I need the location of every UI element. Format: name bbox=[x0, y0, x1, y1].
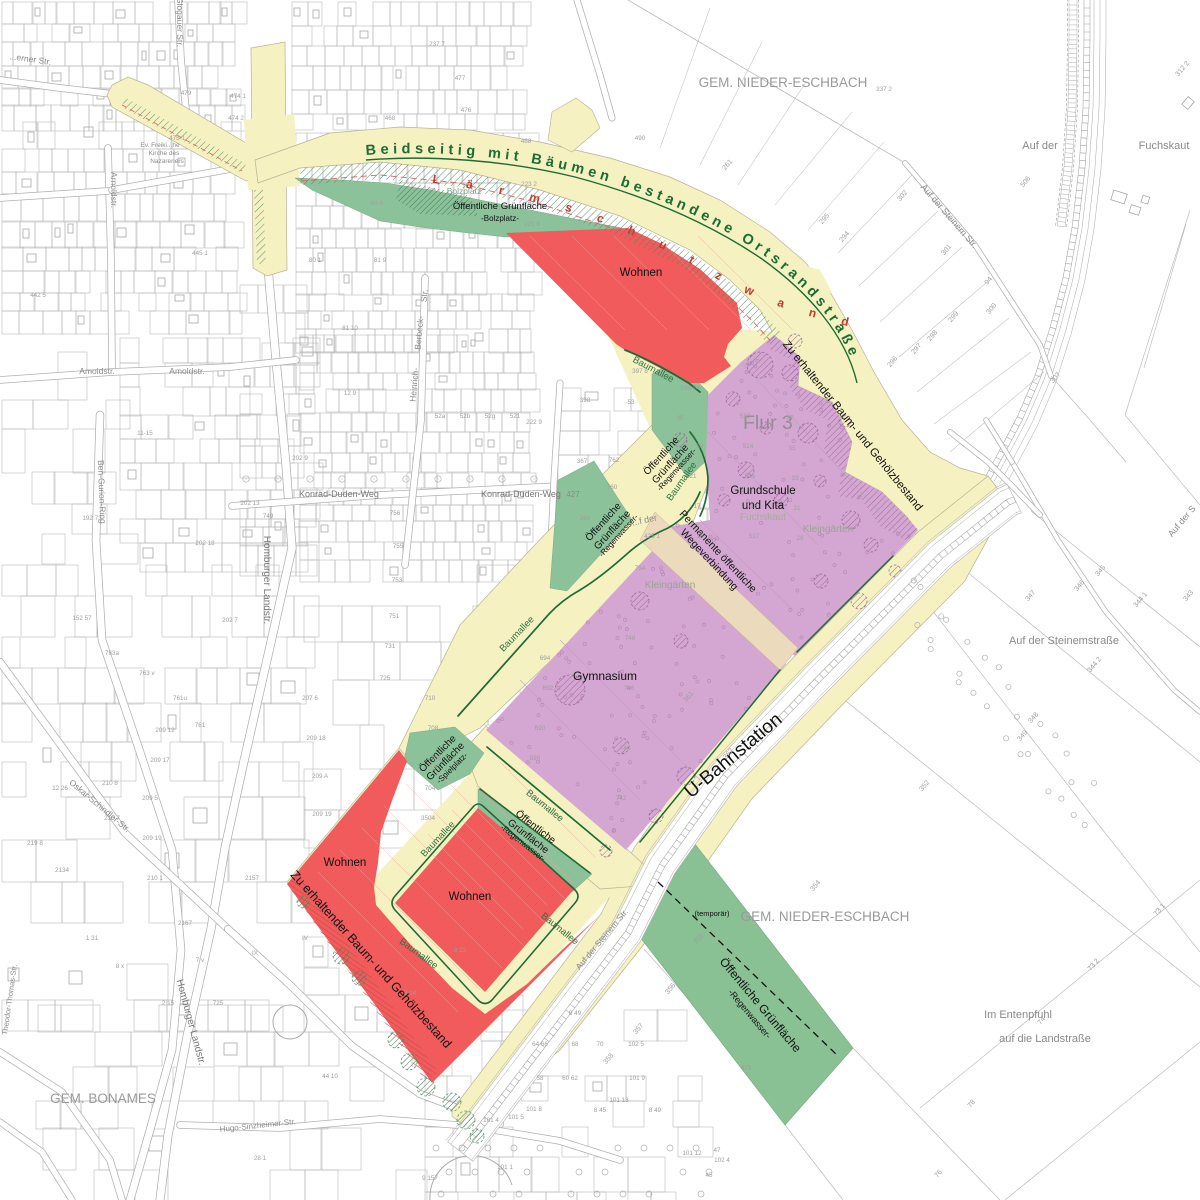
svg-text:725: 725 bbox=[213, 1000, 224, 1007]
svg-text:101 1: 101 1 bbox=[497, 1164, 513, 1171]
svg-text:Gymnasium: Gymnasium bbox=[573, 669, 637, 683]
svg-text:GEM. NIEDER-ESCHBACH: GEM. NIEDER-ESCHBACH bbox=[699, 75, 868, 90]
svg-text:12 9: 12 9 bbox=[344, 390, 357, 397]
svg-text:17: 17 bbox=[693, 503, 701, 510]
svg-text:210 8: 210 8 bbox=[102, 780, 118, 787]
svg-text:Ev. Freiki...he: Ev. Freiki...he bbox=[140, 142, 180, 149]
svg-text:101 13: 101 13 bbox=[609, 1097, 629, 1104]
svg-text:746: 746 bbox=[624, 685, 635, 692]
svg-text:202 13: 202 13 bbox=[240, 500, 260, 507]
svg-text:710: 710 bbox=[425, 695, 436, 702]
svg-text:209 19: 209 19 bbox=[142, 835, 162, 842]
svg-text:692: 692 bbox=[543, 685, 554, 692]
svg-text:21: 21 bbox=[689, 473, 697, 480]
svg-text:Fuchskaut: Fuchskaut bbox=[1139, 140, 1190, 152]
svg-text:Glogauer Str.: Glogauer Str. bbox=[175, 0, 185, 47]
svg-text:102 5: 102 5 bbox=[628, 1041, 644, 1048]
svg-text:8 49: 8 49 bbox=[649, 1107, 662, 1114]
svg-text:694: 694 bbox=[540, 655, 551, 662]
svg-text:101 5: 101 5 bbox=[508, 1114, 524, 1121]
svg-text:761u: 761u bbox=[173, 695, 188, 702]
svg-text:Kleingärten: Kleingärten bbox=[803, 524, 854, 535]
svg-text:367: 367 bbox=[577, 458, 588, 465]
svg-text:474 1: 474 1 bbox=[230, 93, 246, 100]
svg-text:auf die Landstraße: auf die Landstraße bbox=[999, 1033, 1091, 1045]
svg-text:58: 58 bbox=[536, 1075, 544, 1082]
svg-text:222 9: 222 9 bbox=[526, 419, 542, 426]
svg-text:2 15: 2 15 bbox=[162, 1000, 175, 1007]
svg-text:209 12: 209 12 bbox=[155, 727, 175, 734]
svg-text:3504: 3504 bbox=[421, 815, 436, 822]
svg-text:2134: 2134 bbox=[55, 867, 70, 874]
svg-text:760: 760 bbox=[607, 484, 618, 491]
svg-text:101 9: 101 9 bbox=[629, 1075, 645, 1082]
svg-text:-53: -53 bbox=[625, 399, 635, 406]
svg-text:29: 29 bbox=[796, 535, 804, 542]
svg-text:80 8: 80 8 bbox=[371, 200, 384, 207]
svg-text:468: 468 bbox=[385, 115, 396, 122]
svg-text:763a: 763a bbox=[105, 650, 120, 657]
svg-text:209 A: 209 A bbox=[312, 773, 329, 780]
svg-text:GEM. BONAMES: GEM. BONAMES bbox=[50, 1091, 156, 1106]
svg-text:755: 755 bbox=[393, 543, 404, 550]
svg-text:31: 31 bbox=[793, 505, 801, 512]
svg-text:70: 70 bbox=[596, 1041, 604, 1048]
svg-text:762: 762 bbox=[609, 457, 620, 464]
svg-text:521: 521 bbox=[510, 413, 521, 420]
svg-text:223 2: 223 2 bbox=[521, 181, 537, 188]
svg-text:(temporär): (temporär) bbox=[694, 909, 730, 918]
svg-text:8 23: 8 23 bbox=[454, 947, 467, 954]
svg-text:9 157: 9 157 bbox=[422, 1175, 438, 1182]
svg-text:8 x: 8 x bbox=[116, 963, 125, 970]
svg-text:202 9: 202 9 bbox=[292, 455, 308, 462]
svg-text:Homburger Landstr.: Homburger Landstr. bbox=[261, 536, 272, 624]
svg-text:488: 488 bbox=[521, 138, 532, 145]
svg-text:753: 753 bbox=[392, 577, 403, 584]
svg-text:GEM. NIEDER-ESCHBACH: GEM. NIEDER-ESCHBACH bbox=[741, 909, 910, 924]
svg-text:Bolzplatz: Bolzplatz bbox=[447, 186, 482, 196]
svg-text:52g: 52g bbox=[485, 413, 496, 420]
svg-text:Konrad-Duden-Weg: Konrad-Duden-Weg bbox=[299, 489, 379, 499]
svg-text:761: 761 bbox=[195, 722, 206, 729]
svg-text:742: 742 bbox=[616, 795, 627, 802]
svg-text:2167: 2167 bbox=[178, 920, 193, 927]
svg-text:35: 35 bbox=[788, 445, 796, 452]
svg-text:207 6: 207 6 bbox=[302, 695, 318, 702]
svg-text:590: 590 bbox=[530, 755, 541, 762]
svg-text:192 73: 192 73 bbox=[82, 515, 102, 522]
svg-text:219 8: 219 8 bbox=[27, 840, 43, 847]
svg-text:Wohnen: Wohnen bbox=[449, 891, 492, 903]
svg-text:Wohnen: Wohnen bbox=[620, 267, 663, 279]
svg-text:Konrad-Duden-Weg: Konrad-Duden-Weg bbox=[481, 489, 561, 499]
svg-text:101 8: 101 8 bbox=[526, 1106, 542, 1113]
svg-text:445 1: 445 1 bbox=[192, 250, 208, 257]
svg-text:209 17: 209 17 bbox=[150, 757, 170, 764]
svg-text:Amoldstr.: Amoldstr. bbox=[79, 366, 114, 376]
svg-text:398: 398 bbox=[580, 397, 591, 404]
svg-text:1 31: 1 31 bbox=[86, 935, 99, 942]
svg-text:427: 427 bbox=[566, 490, 580, 499]
svg-text:23: 23 bbox=[696, 443, 704, 450]
svg-text:513: 513 bbox=[740, 413, 751, 420]
svg-text:15: 15 bbox=[696, 533, 704, 540]
svg-text:706: 706 bbox=[431, 755, 442, 762]
svg-text:517: 517 bbox=[749, 533, 760, 540]
svg-text:Grundschule: Grundschule bbox=[730, 485, 795, 497]
svg-text:490: 490 bbox=[635, 135, 646, 142]
svg-text:Auf der Steinemstraße: Auf der Steinemstraße bbox=[1009, 635, 1119, 647]
svg-text:52a: 52a bbox=[435, 413, 446, 420]
svg-text:12 26: 12 26 bbox=[52, 785, 68, 792]
svg-text:81 9: 81 9 bbox=[374, 257, 387, 264]
svg-text:25: 25 bbox=[676, 415, 684, 422]
svg-text:Amoldstr.: Amoldstr. bbox=[169, 366, 204, 376]
svg-text:Kirche des: Kirche des bbox=[149, 150, 180, 157]
svg-text:210 1: 210 1 bbox=[147, 875, 163, 882]
svg-text:Nazareners: Nazareners bbox=[150, 158, 184, 165]
svg-text:8 49: 8 49 bbox=[569, 1010, 582, 1017]
svg-text:425 1: 425 1 bbox=[644, 533, 660, 540]
svg-text:60 62: 60 62 bbox=[562, 1075, 578, 1082]
svg-text:536 24: 536 24 bbox=[680, 385, 700, 392]
svg-text:11-15: 11-15 bbox=[137, 430, 153, 437]
svg-text:690: 690 bbox=[535, 725, 546, 732]
svg-text:7 v: 7 v bbox=[196, 957, 205, 964]
svg-text:202 18: 202 18 bbox=[195, 540, 215, 547]
svg-text:473: 473 bbox=[741, 1065, 752, 1072]
svg-text:-Bolzplatz-: -Bolzplatz- bbox=[481, 214, 519, 223]
svg-text:101 4: 101 4 bbox=[483, 1117, 499, 1124]
svg-text:474 2: 474 2 bbox=[228, 115, 244, 122]
svg-text:44 10: 44 10 bbox=[322, 1073, 338, 1080]
svg-text:754: 754 bbox=[635, 565, 646, 572]
svg-text:748: 748 bbox=[625, 635, 636, 642]
svg-text:52b: 52b bbox=[460, 413, 471, 420]
svg-text:209 18: 209 18 bbox=[306, 735, 326, 742]
svg-text:Kleingärten: Kleingärten bbox=[645, 580, 696, 591]
svg-text:731: 731 bbox=[385, 643, 396, 650]
svg-text:515: 515 bbox=[745, 473, 756, 480]
svg-text:751: 751 bbox=[389, 613, 400, 620]
svg-text:397 8: 397 8 bbox=[632, 368, 648, 375]
svg-text:68: 68 bbox=[571, 1041, 579, 1048]
svg-text:8 45: 8 45 bbox=[594, 1107, 607, 1114]
svg-text:Flur 3: Flur 3 bbox=[743, 412, 793, 434]
svg-text:33: 33 bbox=[791, 475, 799, 482]
svg-text:81 10: 81 10 bbox=[342, 325, 358, 332]
svg-text:37: 37 bbox=[786, 415, 794, 422]
svg-text:749: 749 bbox=[263, 513, 274, 520]
svg-text:237 7: 237 7 bbox=[429, 41, 445, 48]
svg-text:209 5: 209 5 bbox=[142, 795, 158, 802]
svg-text:477: 477 bbox=[455, 75, 466, 82]
svg-text:222 9: 222 9 bbox=[524, 221, 540, 228]
svg-text:704: 704 bbox=[425, 785, 436, 792]
svg-text:725: 725 bbox=[380, 675, 391, 682]
svg-text:80 1: 80 1 bbox=[309, 257, 322, 264]
svg-text:209 19: 209 19 bbox=[312, 811, 332, 818]
svg-text:Str.: Str. bbox=[418, 289, 429, 303]
svg-text:3 14: 3 14 bbox=[404, 990, 417, 997]
svg-text:Öffentliche Grünfläche: Öffentliche Grünfläche bbox=[453, 201, 547, 212]
svg-text:708: 708 bbox=[428, 725, 439, 732]
svg-text:744: 744 bbox=[620, 745, 631, 752]
svg-text:479: 479 bbox=[181, 90, 192, 97]
svg-text:210 7: 210 7 bbox=[104, 815, 120, 822]
svg-text:756: 756 bbox=[390, 510, 401, 517]
svg-text:Wohnen: Wohnen bbox=[324, 857, 367, 869]
svg-text:152 57: 152 57 bbox=[72, 615, 92, 622]
svg-text:514: 514 bbox=[743, 443, 754, 450]
svg-text:Arnoldstr.: Arnoldstr. bbox=[109, 172, 119, 208]
svg-text:64 66: 64 66 bbox=[532, 1041, 548, 1048]
svg-text:101 12: 101 12 bbox=[682, 1150, 702, 1157]
svg-text:IV: IV bbox=[302, 935, 309, 942]
svg-text:28 1: 28 1 bbox=[254, 1155, 267, 1162]
svg-text:516: 516 bbox=[747, 503, 758, 510]
svg-text:102 4: 102 4 bbox=[714, 1157, 730, 1164]
svg-text:47: 47 bbox=[713, 1147, 721, 1154]
svg-text:Auf der: Auf der bbox=[1022, 140, 1058, 152]
svg-text:442 5: 442 5 bbox=[30, 292, 46, 299]
svg-text:369: 369 bbox=[580, 515, 591, 522]
svg-text:476: 476 bbox=[461, 107, 472, 114]
svg-text:202 7: 202 7 bbox=[222, 617, 238, 624]
svg-text:475 1: 475 1 bbox=[169, 135, 185, 142]
svg-text:Fuchskaut: Fuchskaut bbox=[740, 512, 786, 523]
svg-text:2157: 2157 bbox=[245, 875, 260, 882]
svg-text:IX: IX bbox=[252, 950, 259, 957]
svg-text:237 2: 237 2 bbox=[876, 86, 892, 93]
svg-text:763 v: 763 v bbox=[139, 670, 155, 677]
